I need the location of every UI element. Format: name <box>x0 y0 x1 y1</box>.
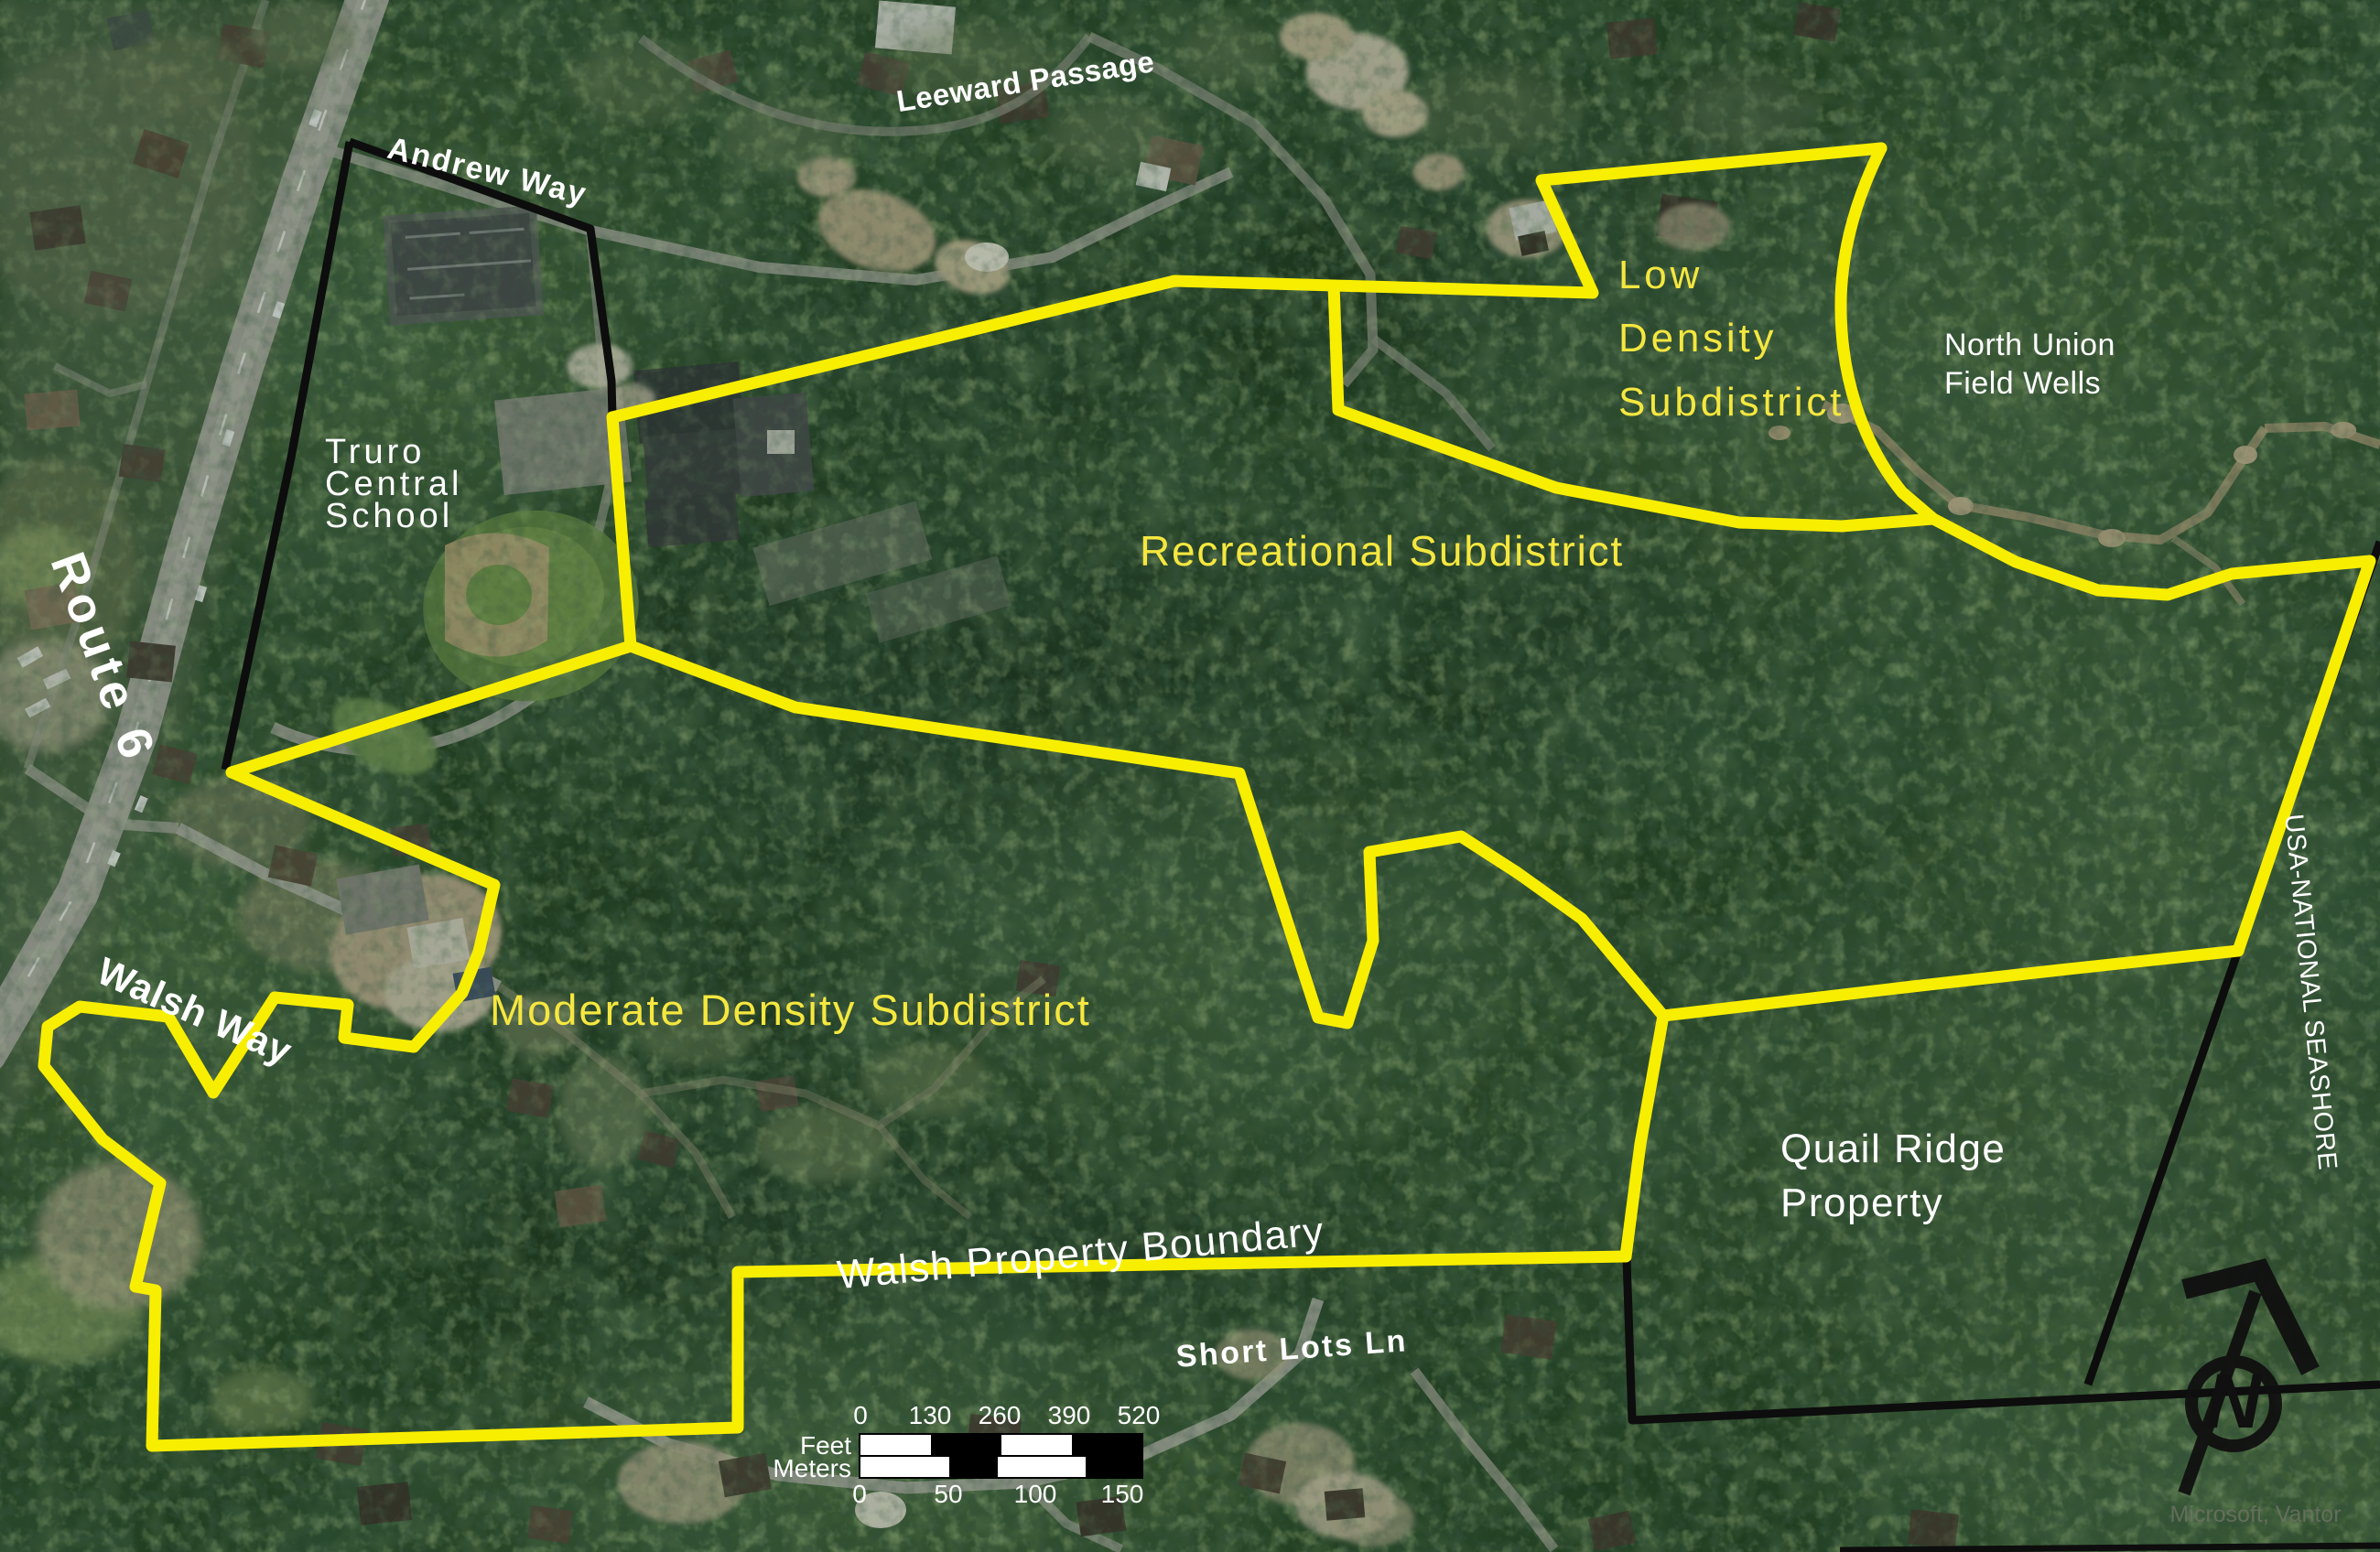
svg-text:150: 150 <box>1101 1480 1144 1508</box>
svg-text:School: School <box>325 497 453 535</box>
svg-text:100: 100 <box>1014 1480 1057 1508</box>
svg-text:260: 260 <box>979 1401 1022 1429</box>
svg-text:Moderate Density Subdistrict: Moderate Density Subdistrict <box>490 986 1091 1034</box>
svg-text:Microsoft, Vantor: Microsoft, Vantor <box>2169 1502 2341 1527</box>
svg-text:Subdistrict: Subdistrict <box>1618 380 1844 425</box>
svg-text:Recreational Subdistrict: Recreational Subdistrict <box>1140 527 1624 575</box>
svg-text:50: 50 <box>934 1480 962 1508</box>
svg-text:130: 130 <box>909 1401 952 1429</box>
svg-text:Low: Low <box>1618 253 1703 297</box>
svg-text:0: 0 <box>852 1480 867 1508</box>
svg-text:520: 520 <box>1118 1401 1161 1429</box>
svg-text:390: 390 <box>1048 1401 1091 1429</box>
svg-text:N: N <box>2206 1358 2264 1444</box>
svg-text:Density: Density <box>1618 316 1777 361</box>
svg-text:Field Wells: Field Wells <box>1944 366 2101 401</box>
svg-text:0: 0 <box>853 1401 868 1429</box>
svg-text:Property: Property <box>1780 1180 1943 1225</box>
svg-text:Quail Ridge: Quail Ridge <box>1780 1126 2006 1171</box>
svg-text:Meters: Meters <box>773 1454 851 1482</box>
svg-text:North Union: North Union <box>1944 328 2115 362</box>
